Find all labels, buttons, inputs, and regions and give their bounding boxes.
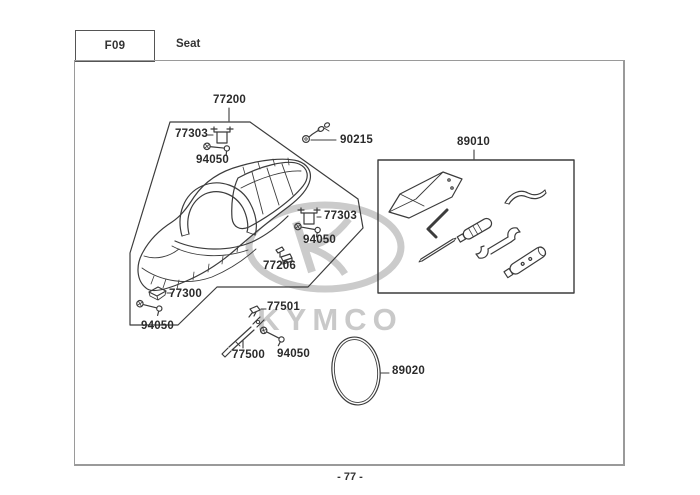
catalog-page: F09 Seat KYMCO [0, 0, 700, 495]
part-label-77303-right: 77303 [324, 210, 357, 222]
tool-kit-box-drawing [378, 160, 574, 293]
clip-90215-drawing [303, 122, 331, 142]
band-89020-drawing [329, 335, 384, 408]
part-label-77501: 77501 [267, 301, 300, 313]
part-label-77500: 77500 [232, 349, 265, 361]
part-label-77200: 77200 [213, 94, 246, 106]
part-label-89020: 89020 [392, 365, 425, 377]
screwdriver-shaft-drawing [419, 238, 456, 262]
part-label-77206: 77206 [263, 260, 296, 272]
part-label-94050-bottomleft: 94050 [141, 320, 174, 332]
bracket-77303-left-drawing [211, 127, 233, 143]
bracket-77303-right-drawing [298, 208, 320, 224]
page-number: - 77 - [0, 471, 700, 483]
parts-diagram: KYMCO [0, 0, 700, 495]
screwdriver-handle-drawing [456, 217, 493, 244]
part-label-90215: 90215 [340, 134, 373, 146]
part-label-94050-bottommid: 94050 [277, 348, 310, 360]
part-label-89010: 89010 [457, 136, 490, 148]
tool-pouch-drawing [389, 172, 462, 218]
open-end-wrench-drawing [476, 228, 520, 258]
spark-plug-socket-drawing [503, 245, 548, 279]
hook-wrench-drawing [505, 190, 546, 204]
part-label-94050-topleft: 94050 [196, 154, 229, 166]
screw-set-94050-bottomleft-drawing [135, 300, 163, 316]
part-label-94050-midright: 94050 [303, 234, 336, 246]
part-label-77300: 77300 [169, 288, 202, 300]
hex-key-drawing [428, 210, 447, 237]
part-label-77303-left: 77303 [175, 128, 208, 140]
